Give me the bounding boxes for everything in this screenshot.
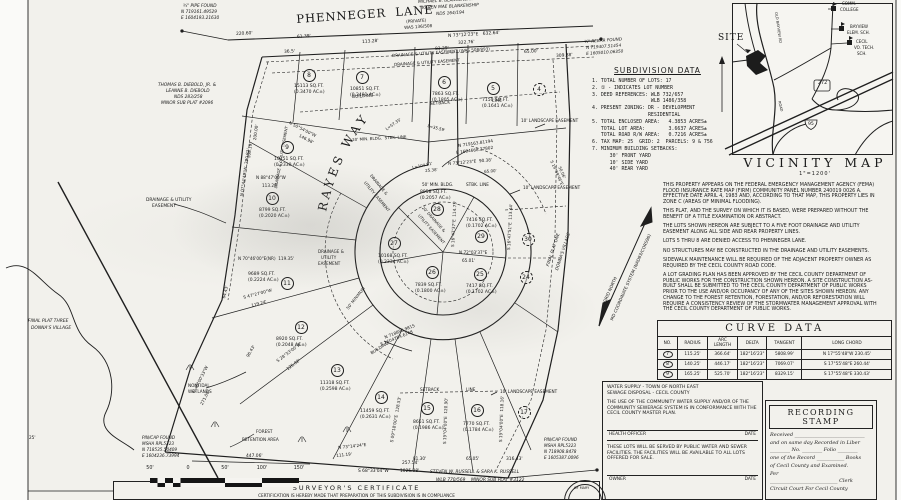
wetland-symbol: [186, 364, 351, 442]
master-plan-note: THE USE OF THE COMMUNITY WATER SUPPLY AN…: [607, 400, 758, 417]
curve-number-cell: 8: [658, 360, 678, 370]
curve-data-cell: 182°16'23": [738, 370, 767, 380]
school-flag: [841, 22, 845, 26]
health-officer-label: HEALTH OFFICER: [609, 432, 646, 437]
recording-stamp-line: Circuit Court For Cecil County: [766, 486, 876, 494]
north-arrow: [599, 208, 652, 326]
curve-data-cell: 5808.99': [767, 350, 802, 360]
curve-number-cell: 9: [658, 370, 678, 380]
sewage-disposal-line: SEWAGE DISPOSAL - CECIL COUNTY: [607, 391, 758, 397]
curve-data-cell: 182°16'23": [738, 350, 767, 360]
school-flag: [849, 36, 853, 40]
scale-bar-segment: [150, 483, 188, 488]
route-272-shield: [814, 80, 830, 91]
curve-data-cell: 446.17': [708, 360, 738, 370]
curve-data-cell: 115.25': [678, 350, 708, 360]
utilities-certification-box: WATER SUPPLY - TOWN OF NORTH EAST SEWAGE…: [602, 381, 763, 500]
curve-data-row: 9165.25'525.70'182°16'23"8329.15'S 17°55…: [658, 370, 892, 380]
curve-data-cell: 366.64': [708, 350, 738, 360]
plat-note: NO STRUCTURES MAY BE CONSTRUCTED IN THE …: [663, 249, 879, 255]
date-label: DATE: [745, 477, 756, 482]
seal-text: OF MARY: [574, 486, 589, 490]
curve-data-header: TANGENT: [767, 337, 802, 350]
curve-data-cell: 182°16'23": [738, 360, 767, 370]
curve-data-cell: N 17°55'48"W 230.45': [802, 350, 892, 360]
curve-data-header: LONG CHORD: [802, 337, 892, 350]
health-officer-signature-row: HEALTH OFFICER DATE: [607, 430, 758, 437]
subdivision-data-line: RESIDENTIAL: [592, 112, 713, 119]
owner-label: OWNER: [609, 477, 626, 482]
subdivision-data-title: SUBDIVISION DATA: [614, 66, 713, 75]
adjacent-boundary-line: [58, 182, 218, 478]
subdivision-data-block: SUBDIVISION DATA 1. TOTAL NUMBER OF LOTS…: [592, 66, 713, 173]
curve-data-cell: S 17°55'48"E 330.43': [802, 370, 892, 380]
school-symbol: [831, 6, 836, 11]
subdivision-data-line: TOTAL ROAD R/W AREA: 0.7216 ACRES±: [592, 132, 713, 139]
subdivision-data-line: TOTAL LOT AREA: 3.6637 ACRES±: [592, 126, 713, 133]
curve-data-header: ARC LENGTH: [708, 337, 738, 350]
school-flag: [833, 2, 837, 6]
subdivision-data-line: 10' SIDE YARD: [592, 160, 713, 167]
school-symbol: [839, 26, 844, 31]
scale-bar: 50'050'100'150': [140, 466, 315, 494]
divider: [607, 440, 758, 441]
plat-notes: THIS PROPERTY APPEARS ON THE FEDERAL EME…: [663, 183, 879, 317]
vicinity-map-title: VICINITY MAP: [736, 155, 894, 170]
subdivision-data-line: 5. TOTAL ENCLOSED AREA: 4.3853 ACRES±: [592, 119, 713, 126]
subdivision-data-line: 2. ① - INDICATES LOT NUMBER: [592, 85, 713, 92]
recording-stamp-line: Per: [766, 471, 876, 479]
subdivision-data-line: 6. TAX MAP: 25 GRID: 2 PARCELS: 9 & 756: [592, 139, 713, 146]
plat-note: LOTS 5 THRU 8 ARE DENIED ACCESS TO PHENN…: [663, 239, 879, 245]
curve-data-cell: 140.25': [678, 360, 708, 370]
curve-data-row: 8140.25'446.17'182°16'23"7069.07'S 17°55…: [658, 360, 892, 370]
scale-tick-label: 100': [257, 466, 267, 471]
scale-tick-label: 150': [294, 466, 304, 471]
school-symbol: [847, 40, 852, 45]
plat-note: SIDEWALK MAINTENANCE WILL BE REQUIRED OF…: [663, 258, 879, 269]
legend-box-corner: [28, 491, 118, 500]
interstate-95-shield: [805, 120, 817, 130]
subdivision-data-line: 7. MINIMUM BUILDING SETBACKS:: [592, 146, 713, 153]
recording-stamp-line: of Cecil County and Examined.: [766, 463, 876, 471]
date-label: DATE: [745, 432, 756, 437]
plat-note: THIS PLAT, AND THE SURVEY ON WHICH IT IS…: [663, 209, 879, 220]
street-label-rayes-way-text: RAYES WAY: [315, 110, 372, 212]
subdivision-data-line: WLB 1486/358: [592, 98, 713, 105]
street-label-rayes-way: RAYES WAY: [315, 110, 372, 212]
curve-data-table: CURVE DATA NO.RADIUSARC LENGTHDELTATANGE…: [657, 320, 892, 380]
curve-data-cell: 165.25': [678, 370, 708, 380]
subdivision-data-line: 30' FRONT YARD: [592, 153, 713, 160]
plat-note: THE LOTS SHOWN HEREON ARE SUBJECT TO A F…: [663, 224, 879, 235]
recording-stamp-line: ________ No. ________ Folio ________: [766, 447, 876, 455]
subdivision-data-line: 3. DEED REFERENCES: WLB 732/657: [592, 92, 713, 99]
curve-data-header: NO.: [658, 337, 678, 350]
scale-bar-segment: [188, 483, 299, 488]
curve-data-cell: 8329.15': [767, 370, 802, 380]
vicinity-map-scale: 1"=1200': [736, 171, 894, 177]
vicinity-roads: [719, 3, 893, 155]
curve-data-cell: S 17°55'48"E 260.44': [802, 360, 892, 370]
owner-signature-row: OWNER DATE: [607, 475, 758, 482]
curve-data-title: CURVE DATA: [658, 321, 892, 337]
scale-tick-label: 50': [146, 466, 153, 471]
surveyor-seal: OF MARY: [561, 478, 609, 500]
plat-note: A LOT GRADING PLAN HAS BEEN APPROVED BY …: [663, 273, 879, 313]
easement-dashed-lines: [228, 46, 594, 468]
subdivision-data-line: 40' REAR YARD: [592, 166, 713, 173]
plat-document-page: RAYES WAY: [0, 0, 901, 500]
recording-stamp-title: RECORDING STAMP: [769, 405, 873, 429]
recording-stamp-box: RECORDING STAMP Received _______________…: [765, 400, 877, 500]
subdivision-data-line: 1. TOTAL NUMBER OF LOTS: 17: [592, 78, 713, 85]
recording-stamp-line: Received ____________________________: [766, 432, 876, 440]
curve-data-cell: 7069.07': [767, 360, 802, 370]
subdivision-data-line: 4. PRESENT ZONING: DR - DEVELOPMENT: [592, 105, 713, 112]
curve-data-header-row: NO.RADIUSARC LENGTHDELTATANGENTLONG CHOR…: [658, 337, 892, 350]
scale-tick-label: 0: [186, 466, 189, 471]
curve-data-row: 7115.25'366.64'182°16'23"5808.99'N 17°55…: [658, 350, 892, 360]
curve-data-header: DELTA: [738, 337, 767, 350]
plat-note: THIS PROPERTY APPEARS ON THE FEDERAL EME…: [663, 183, 879, 206]
curve-data-cell: 525.70': [708, 370, 738, 380]
recording-stamp-line: and on same day Recorded in Liber: [766, 440, 876, 448]
curve-number-cell: 7: [658, 350, 678, 360]
curve-data-header: RADIUS: [678, 337, 708, 350]
scale-tick-label: 50': [221, 466, 228, 471]
public-water-note: THESE LOTS WILL BE SERVED BY PUBLIC WATE…: [607, 445, 758, 462]
creek-line: [6, 266, 134, 450]
recording-stamp-line: ___________________________ Clerk: [766, 478, 876, 486]
recording-stamp-line: one of the Record ___________ Books: [766, 455, 876, 463]
